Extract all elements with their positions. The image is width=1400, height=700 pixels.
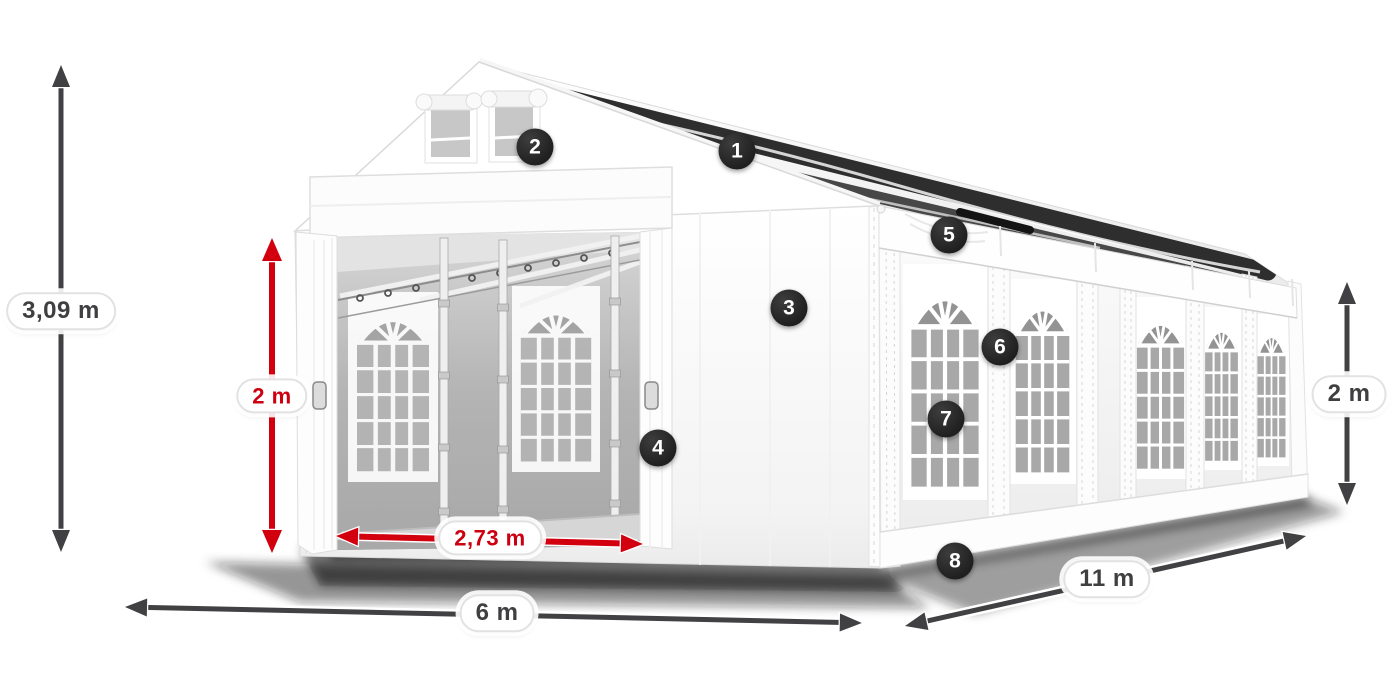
callout-8: 8 [937, 543, 974, 580]
dimension-label-door-height: 2 m [236, 378, 307, 413]
dimension-label-side-length: 11 m [1063, 560, 1150, 598]
door-header [310, 167, 672, 238]
callout-number: 3 [783, 296, 795, 320]
callout-number: 5 [943, 223, 955, 247]
callout-4: 4 [640, 430, 677, 467]
callout-7: 7 [928, 401, 965, 438]
tent-dimension-diagram: 1 2 3 4 5 6 7 8 3,09 m 2 m 2,73 m 6 m 11… [0, 0, 1400, 700]
door-handle-left [313, 382, 326, 409]
callout-number: 6 [994, 335, 1006, 359]
dimension-label-side-height: 2 m [1312, 375, 1387, 413]
callout-6: 6 [982, 329, 1019, 366]
side-window-5 [1254, 314, 1289, 466]
callout-1: 1 [719, 133, 756, 170]
side-window-4 [1201, 307, 1242, 470]
callout-3: 3 [771, 290, 808, 327]
callout-number: 2 [529, 135, 541, 159]
door-leaf-right [640, 228, 672, 549]
side-window-2 [1009, 279, 1076, 484]
gable-vent-left [416, 93, 482, 163]
callout-2: 2 [517, 129, 554, 166]
door-handle-right [645, 382, 658, 409]
dimension-label-total-height: 3,09 m [6, 292, 116, 330]
tent-illustration [0, 0, 1400, 700]
dimension-label-door-width: 2,73 m [438, 520, 542, 555]
callout-5: 5 [931, 217, 968, 254]
side-window-3 [1131, 297, 1190, 479]
dimension-label-front-width: 6 m [460, 594, 535, 632]
side-window-1 [903, 264, 987, 500]
callout-number: 8 [949, 549, 961, 573]
door-opening [337, 232, 640, 552]
callout-number: 4 [652, 436, 664, 460]
callout-number: 1 [731, 139, 743, 163]
callout-number: 7 [940, 407, 952, 431]
